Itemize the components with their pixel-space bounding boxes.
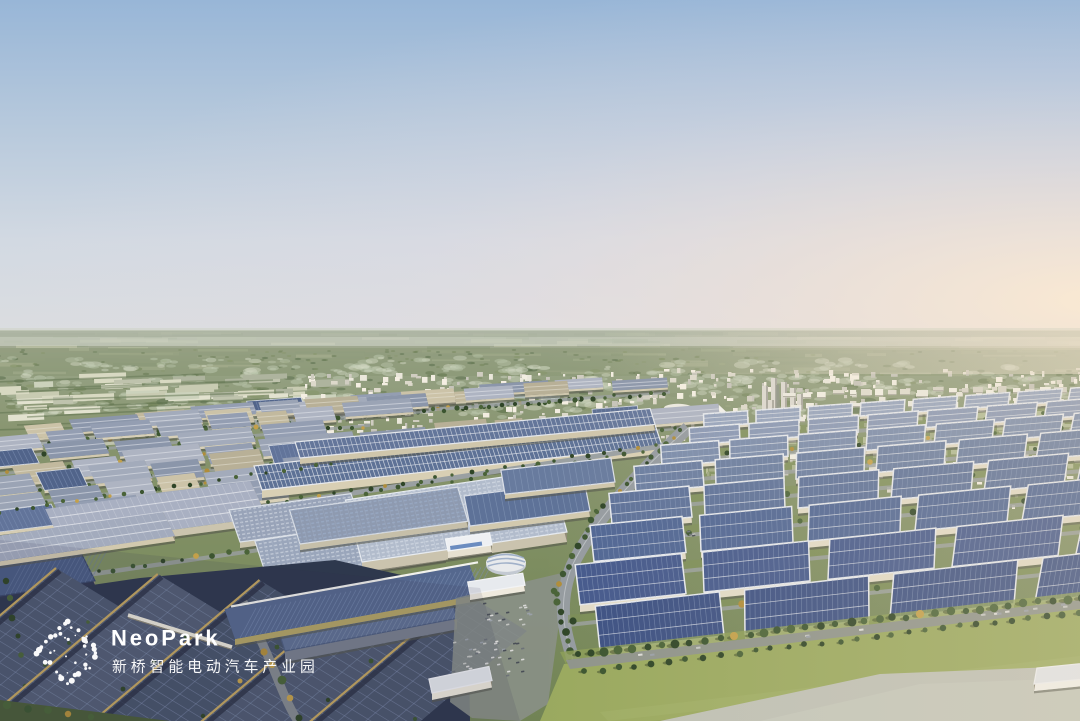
svg-text:NeoPark: NeoPark — [111, 626, 221, 651]
svg-text:新桥智能电动汽车产业园: 新桥智能电动汽车产业园 — [112, 658, 319, 676]
